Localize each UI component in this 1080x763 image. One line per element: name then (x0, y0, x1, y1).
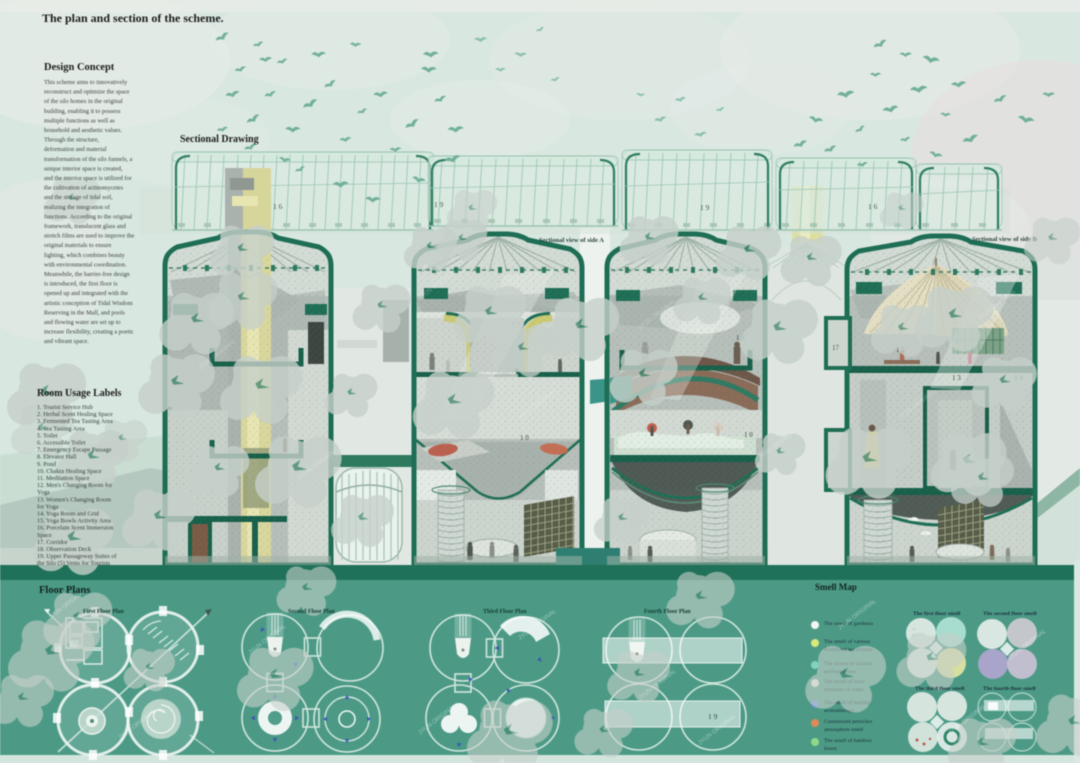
svg-text:Floor Plans: Floor Plans (39, 585, 90, 596)
svg-text:17: 17 (832, 344, 840, 352)
svg-text:reconstruct and optimize the s: reconstruct and optimize the space (44, 89, 130, 96)
svg-text:realizing the integration of: realizing the integration of (44, 204, 111, 211)
svg-text:16. Porcelain Scent Immersion: 16. Porcelain Scent Immersion (37, 525, 113, 532)
svg-text:transformation of the silo fun: transformation of the silo funnels, a (44, 156, 133, 163)
svg-text:Third Floor Plan: Third Floor Plan (483, 609, 527, 615)
svg-text:3. Fermented Tea Tasting Area: 3. Fermented Tea Tasting Area (37, 418, 113, 425)
svg-text:Meanwhile, the barrier-free de: Meanwhile, the barrier-free design (44, 271, 130, 278)
svg-text:artistic conception of Tidal W: artistic conception of Tidal Wisdom (44, 300, 133, 307)
svg-text:1 9: 1 9 (434, 200, 444, 209)
svg-text:framework, translucent glass a: framework, translucent glass and (44, 223, 127, 230)
svg-text:1 3: 1 3 (952, 374, 961, 382)
svg-text:and flowing water are set up t: and flowing water are set up to (44, 319, 121, 326)
svg-text:lighting, which combines beaut: lighting, which combines beauty (44, 252, 126, 259)
svg-text:1 9: 1 9 (708, 712, 718, 721)
svg-text:Second Floor Plan: Second Floor Plan (288, 609, 336, 615)
svg-text:Design Concept: Design Concept (44, 62, 115, 73)
svg-text:The second floor smell: The second floor smell (983, 611, 1037, 617)
svg-text:multiple functions as well as: multiple functions as well as (44, 117, 115, 124)
svg-text:19. Upper Passageway Suites of: 19. Upper Passageway Suites of (37, 553, 118, 560)
svg-text:1. Tourist Service Hub: 1. Tourist Service Hub (37, 404, 93, 411)
svg-text:The smell of bamboo: The smell of bamboo (824, 737, 872, 744)
svg-text:Sectional view of side A: Sectional view of side A (539, 237, 604, 244)
svg-text:1 6: 1 6 (273, 202, 283, 211)
svg-text:First Floor Plan: First Floor Plan (83, 609, 125, 615)
svg-text:stretch films are used to impr: stretch films are used to improve the (44, 233, 135, 240)
svg-text:15. Yoga Bowls Activity Area: 15. Yoga Bowls Activity Area (37, 518, 111, 525)
svg-text:atmosphere smell: atmosphere smell (824, 727, 864, 733)
svg-text:and the interior space is util: and the interior space is utilized for (44, 175, 132, 182)
svg-text:10. Chakra Healing Space: 10. Chakra Healing Space (37, 468, 102, 475)
svg-text:13. Women's Changing Room: 13. Women's Changing Room (37, 496, 111, 503)
svg-text:14. Yoga Room and Grid: 14. Yoga Room and Grid (37, 511, 100, 518)
svg-text:Sectional Drawing: Sectional Drawing (180, 134, 259, 145)
svg-text:12. Men's Changing Room for: 12. Men's Changing Room for (37, 482, 112, 489)
svg-text:forest: forest (824, 745, 837, 752)
svg-text:2. Herbal Scent Healing Space: 2. Herbal Scent Healing Space (37, 411, 113, 418)
svg-text:|||||: ||||| (912, 627, 916, 631)
svg-text:unique interior space is creat: unique interior space is created, (44, 165, 123, 172)
svg-text:This scheme aims to innovative: This scheme aims to innovatively (44, 79, 128, 86)
svg-text:functions. According to the or: functions. According to the original (44, 213, 132, 220)
svg-text:household and aesthetic values: household and aesthetic values. (44, 127, 122, 134)
svg-text:8. Elevator Hall: 8. Elevator Hall (37, 454, 77, 461)
svg-text:Fourth Floor Plan: Fourth Floor Plan (644, 609, 691, 615)
svg-text:building, enabling it to posse: building, enabling it to possess (44, 108, 121, 115)
svg-text:1 0: 1 0 (520, 434, 529, 442)
svg-text:with environmental coordinatio: with environmental coordination. (44, 261, 127, 268)
svg-text:the Silo (5) Vents for Tourist: the Silo (5) Vents for Tourists (37, 560, 111, 567)
svg-text:4. Tea Tasting Area: 4. Tea Tasting Area (37, 425, 85, 432)
svg-text:The fourth floor smell: The fourth floor smell (983, 686, 1036, 692)
svg-text:Room Usage Labels: Room Usage Labels (37, 388, 122, 399)
svg-text:Reserving in the Mall, and poo: Reserving in the Mall, and pools (44, 309, 125, 316)
svg-text:original materials to ensure: original materials to ensure (44, 242, 112, 249)
svg-text:Customized petrichor: Customized petrichor (824, 719, 872, 725)
svg-text:deformation and material: deformation and material (44, 146, 107, 153)
svg-text:1 6: 1 6 (868, 202, 878, 211)
svg-text:Yoga: Yoga (37, 489, 50, 496)
svg-text:9. Pond: 9. Pond (37, 461, 57, 468)
svg-text:5. Toilet: 5. Toilet (37, 432, 58, 439)
svg-text:of the silo homes in the origi: of the silo homes in the original (44, 98, 123, 105)
svg-text:Through the structure,: Through the structure, (44, 137, 100, 144)
svg-text:7. Emergency Escape Passage: 7. Emergency Escape Passage (37, 447, 112, 454)
svg-text:The first floor smell: The first floor smell (913, 611, 961, 617)
svg-text:18. Observation Deck: 18. Observation Deck (37, 546, 92, 553)
svg-text:6. Accessible Toilet: 6. Accessible Toilet (37, 440, 86, 447)
svg-text:11. Meditation Space: 11. Meditation Space (37, 475, 90, 482)
svg-text:and vibrant space.: and vibrant space. (44, 338, 89, 345)
svg-text:for Yoga: for Yoga (37, 503, 59, 510)
svg-text:Space: Space (37, 532, 52, 539)
svg-text:The plan and section of the sc: The plan and section of the scheme. (42, 11, 224, 25)
svg-text:and the storage of tidal soil,: and the storage of tidal soil, (44, 194, 113, 201)
svg-text:The smell of various: The smell of various (824, 638, 870, 645)
svg-text:1 0: 1 0 (744, 431, 753, 439)
svg-text:17. Corridor: 17. Corridor (37, 539, 68, 546)
svg-text:1 9: 1 9 (700, 203, 710, 212)
svg-text:opened up and integrated with: opened up and integrated with the (44, 290, 128, 297)
svg-text:increase flexibility, creating: increase flexibility, creating a poetic (44, 329, 134, 336)
svg-text:is introduced, the first floor: is introduced, the first floor is (44, 281, 118, 288)
svg-text:The third floor smell: The third floor smell (915, 686, 965, 692)
svg-text:the cultivation of actinomycet: the cultivation of actinomycetes (44, 185, 124, 192)
svg-text:Smell Map: Smell Map (815, 582, 857, 592)
